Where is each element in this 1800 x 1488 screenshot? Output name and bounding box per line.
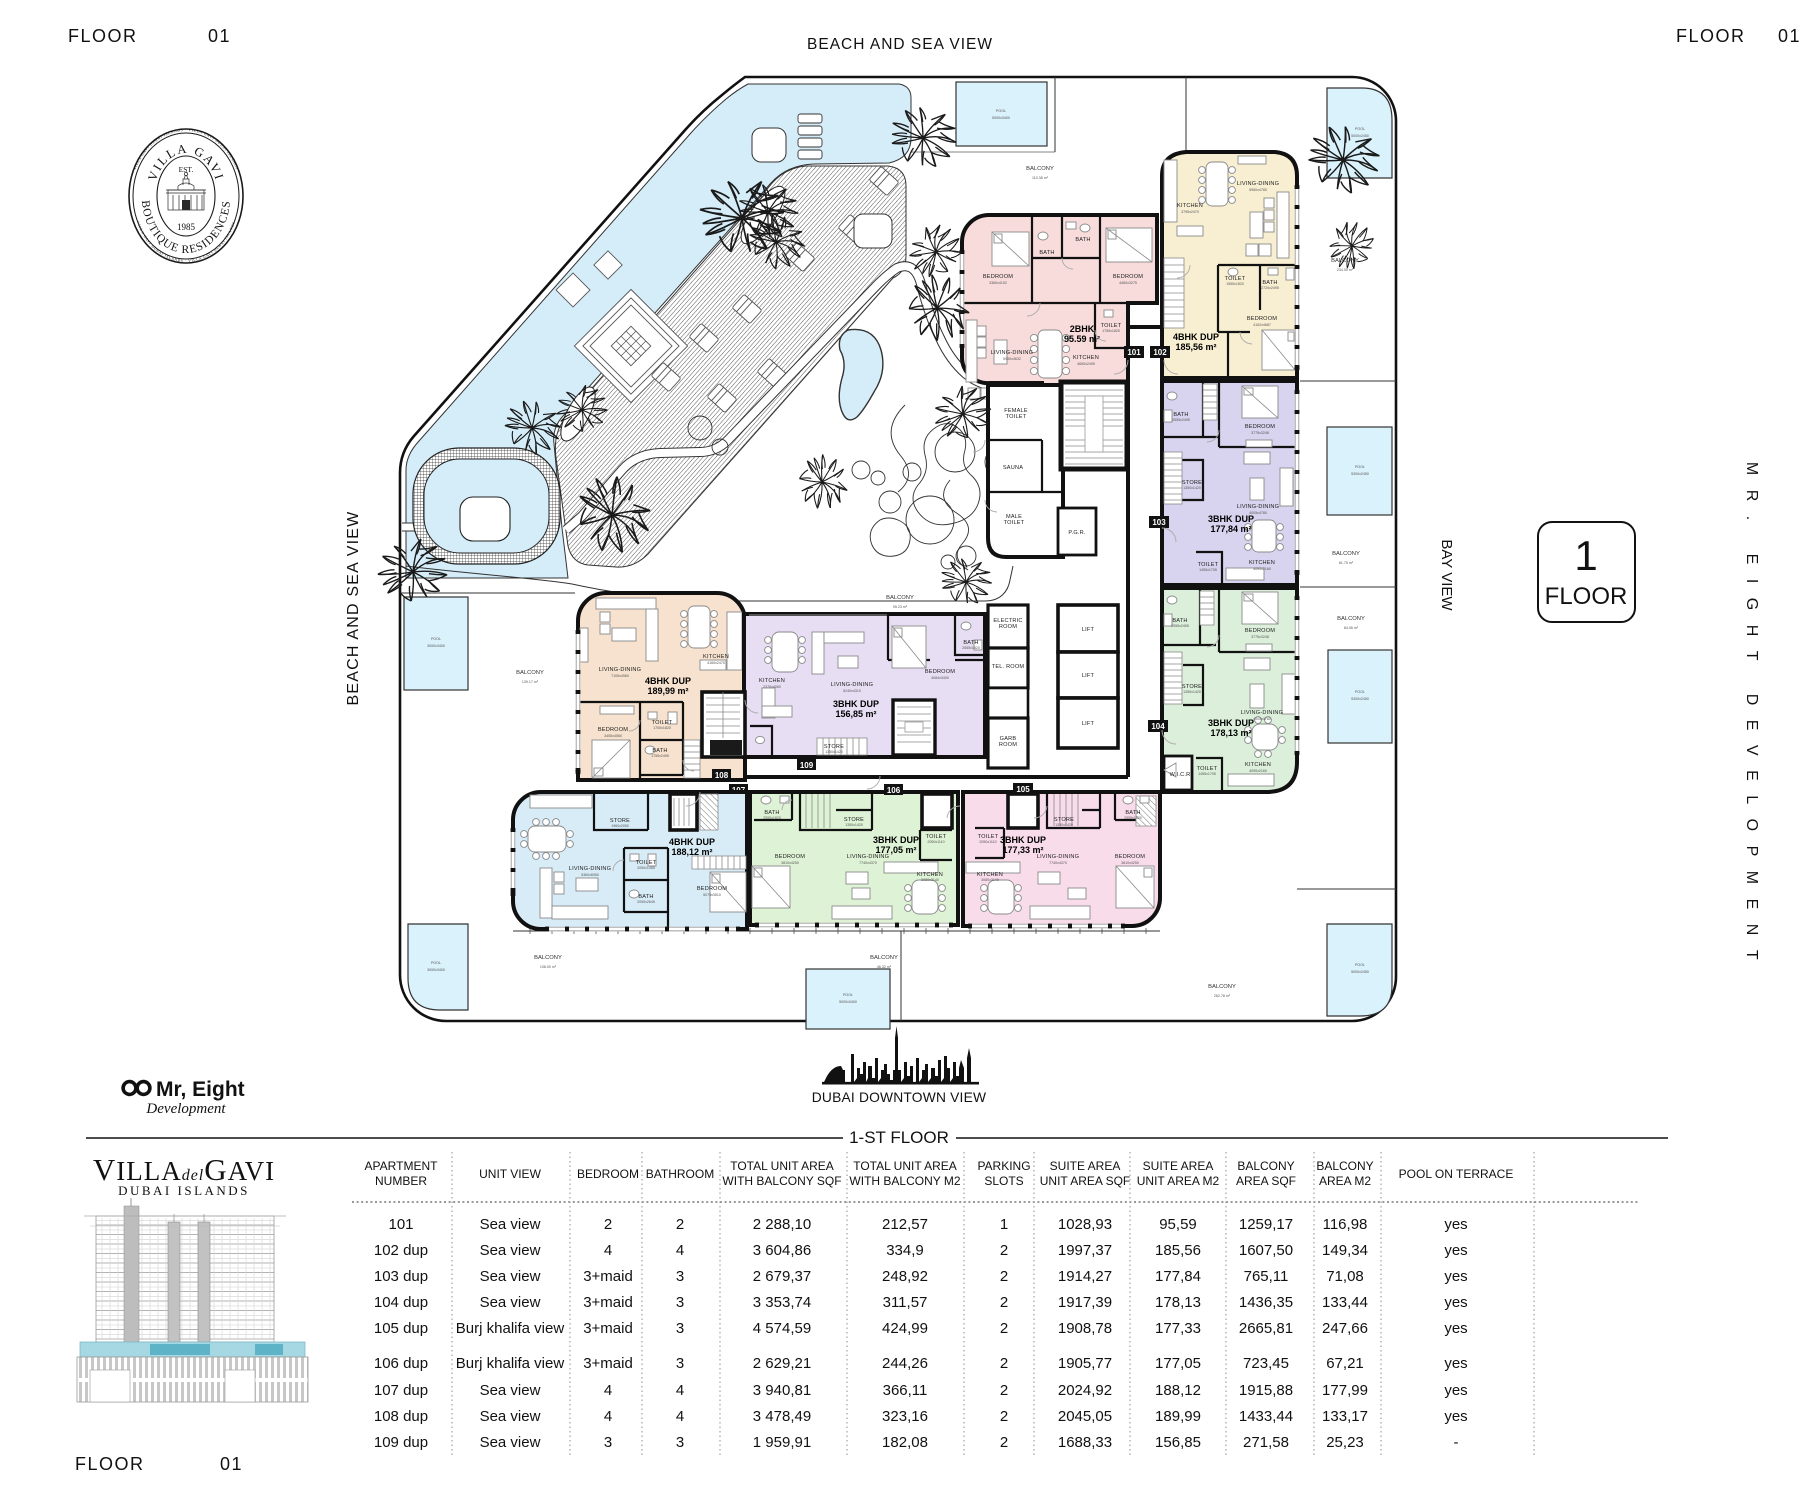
- svg-text:5000x3400: 5000x3400: [839, 1000, 857, 1004]
- svg-text:3BHK DUP: 3BHK DUP: [1208, 514, 1254, 524]
- svg-text:Sea view: Sea view: [480, 1268, 541, 1285]
- svg-text:212,57: 212,57: [882, 1216, 928, 1233]
- svg-text:234.00 m²: 234.00 m²: [1337, 268, 1354, 272]
- svg-text:244,26: 244,26: [882, 1355, 928, 1372]
- svg-text:1960x2050: 1960x2050: [611, 824, 629, 828]
- svg-text:4160x2470: 4160x2470: [707, 661, 725, 665]
- svg-text:LIVING-DINING: LIVING-DINING: [847, 854, 889, 860]
- svg-text:AREA M2: AREA M2: [1319, 1174, 1371, 1188]
- svg-text:UNIT VIEW: UNIT VIEW: [479, 1167, 541, 1181]
- svg-text:2370x4060: 2370x4060: [763, 685, 781, 689]
- svg-text:BEDROOM: BEDROOM: [775, 854, 805, 860]
- svg-text:188,12 m²: 188,12 m²: [671, 847, 712, 857]
- svg-text:Sea view: Sea view: [480, 1382, 541, 1399]
- svg-text:1607,50: 1607,50: [1239, 1242, 1293, 1259]
- svg-text:LIVING-DINING: LIVING-DINING: [599, 667, 641, 673]
- svg-text:1: 1: [1000, 1216, 1008, 1233]
- svg-text:POOL: POOL: [1355, 690, 1365, 694]
- svg-text:3 353,74: 3 353,74: [753, 1294, 811, 1311]
- svg-text:108: 108: [715, 771, 729, 780]
- svg-text:1917,39: 1917,39: [1058, 1294, 1112, 1311]
- svg-text:4BHK DUP: 4BHK DUP: [669, 837, 715, 847]
- svg-text:TOILET: TOILET: [1006, 414, 1027, 420]
- svg-text:1350x1420: 1350x1420: [1055, 823, 1073, 827]
- svg-text:BEDROOM: BEDROOM: [983, 274, 1013, 280]
- svg-text:177,84 m²: 177,84 m²: [1210, 524, 1251, 534]
- svg-text:KITCHEN: KITCHEN: [1249, 560, 1275, 566]
- svg-text:BATH: BATH: [1039, 250, 1054, 256]
- svg-text:133,17: 133,17: [1322, 1408, 1368, 1425]
- svg-text:Sea view: Sea view: [480, 1242, 541, 1259]
- svg-text:109 dup: 109 dup: [374, 1434, 428, 1451]
- svg-text:1-ST FLOOR: 1-ST FLOOR: [849, 1128, 949, 1147]
- svg-text:1985: 1985: [177, 222, 196, 232]
- svg-text:yes: yes: [1444, 1408, 1467, 1425]
- svg-text:3: 3: [604, 1434, 612, 1451]
- svg-text:3 940,81: 3 940,81: [753, 1382, 811, 1399]
- svg-text:P.G.R.: P.G.R.: [1068, 530, 1086, 536]
- svg-text:4 574,59: 4 574,59: [753, 1320, 811, 1337]
- svg-text:POOL: POOL: [1355, 465, 1365, 469]
- svg-text:334,9: 334,9: [886, 1242, 924, 1259]
- svg-text:3BHK DUP: 3BHK DUP: [833, 699, 879, 709]
- svg-text:3810x4250: 3810x4250: [781, 861, 799, 865]
- svg-text:1350x1420: 1350x1420: [845, 823, 863, 827]
- svg-text:POOL: POOL: [431, 637, 441, 641]
- svg-text:Mr, Eight: Mr, Eight: [156, 1078, 245, 1101]
- svg-text:yes: yes: [1444, 1242, 1467, 1259]
- svg-text:TOTAL UNIT AREA: TOTAL UNIT AREA: [853, 1159, 957, 1173]
- svg-text:Sea view: Sea view: [480, 1294, 541, 1311]
- svg-text:W.I.C.R: W.I.C.R: [1170, 772, 1191, 778]
- svg-text:101: 101: [1127, 348, 1141, 357]
- svg-text:Burj khalifa view: Burj khalifa view: [456, 1320, 565, 1337]
- svg-text:3360x4102: 3360x4102: [989, 281, 1007, 285]
- svg-text:3: 3: [676, 1294, 684, 1311]
- svg-text:Development: Development: [145, 1101, 226, 1117]
- svg-text:3: 3: [676, 1355, 684, 1372]
- svg-text:2050x1110: 2050x1110: [927, 840, 944, 844]
- svg-text:3 478,49: 3 478,49: [753, 1408, 811, 1425]
- svg-text:3810x4250: 3810x4250: [1121, 861, 1139, 865]
- svg-text:1350x1420: 1350x1420: [1183, 486, 1201, 490]
- svg-text:BEDROOM: BEDROOM: [1245, 628, 1275, 634]
- svg-text:yes: yes: [1444, 1320, 1467, 1337]
- svg-text:Burj khalifa view: Burj khalifa view: [456, 1355, 565, 1372]
- svg-text:5000x2450: 5000x2450: [1351, 134, 1369, 138]
- svg-text:AREA SQF: AREA SQF: [1236, 1174, 1296, 1188]
- svg-text:FLOOR: FLOOR: [1676, 26, 1746, 46]
- svg-text:188,12: 188,12: [1155, 1382, 1201, 1399]
- svg-text:4BHK DUP: 4BHK DUP: [645, 676, 691, 686]
- svg-text:UNIT AREA M2: UNIT AREA M2: [1137, 1174, 1220, 1188]
- svg-text:2045,05: 2045,05: [1058, 1408, 1112, 1425]
- svg-text:BALCONY: BALCONY: [1208, 984, 1236, 990]
- svg-text:2555x1820: 2555x1820: [962, 646, 980, 650]
- svg-text:BATHROOM: BATHROOM: [646, 1167, 714, 1181]
- svg-text:3795x2470: 3795x2470: [1181, 210, 1199, 214]
- svg-text:SAUNA: SAUNA: [1003, 465, 1023, 471]
- svg-text:3+maid: 3+maid: [583, 1355, 633, 1372]
- svg-text:BEDROOM: BEDROOM: [1247, 316, 1277, 322]
- svg-text:BEDROOM: BEDROOM: [1115, 854, 1145, 860]
- svg-text:5000x2450: 5000x2450: [1351, 970, 1369, 974]
- svg-text:3+maid: 3+maid: [583, 1294, 633, 1311]
- svg-text:1455x1705: 1455x1705: [1198, 772, 1216, 776]
- svg-text:2: 2: [1000, 1242, 1008, 1259]
- svg-text:1555x1820: 1555x1820: [1226, 282, 1244, 286]
- svg-text:2555x2495: 2555x2495: [1172, 418, 1190, 422]
- svg-text:366,11: 366,11: [883, 1382, 928, 1399]
- svg-text:1905,77: 1905,77: [1058, 1355, 1112, 1372]
- svg-text:182,08: 182,08: [882, 1434, 928, 1451]
- svg-text:1 959,91: 1 959,91: [753, 1434, 811, 1451]
- svg-text:LIVING-DINING: LIVING-DINING: [831, 682, 873, 688]
- svg-text:3775x3248: 3775x3248: [1251, 635, 1269, 639]
- svg-text:FLOOR: FLOOR: [68, 26, 138, 46]
- svg-text:71,08: 71,08: [1326, 1268, 1364, 1285]
- svg-text:LIVING-DINING: LIVING-DINING: [1237, 181, 1279, 187]
- svg-text:248,92: 248,92: [882, 1268, 928, 1285]
- svg-text:156,85: 156,85: [1155, 1434, 1201, 1451]
- svg-text:TOTAL UNIT AREA: TOTAL UNIT AREA: [730, 1159, 834, 1173]
- svg-text:178,13 m²: 178,13 m²: [1210, 728, 1251, 738]
- svg-text:3080x3140: 3080x3140: [981, 878, 999, 882]
- svg-text:271,58: 271,58: [1243, 1434, 1289, 1451]
- svg-text:2BHK: 2BHK: [1070, 324, 1095, 334]
- svg-text:262.78 m²: 262.78 m²: [1214, 994, 1231, 998]
- svg-text:116,98: 116,98: [1323, 1216, 1368, 1233]
- svg-text:2: 2: [1000, 1355, 1008, 1372]
- svg-text:BEACH AND SEA VIEW: BEACH AND SEA VIEW: [807, 36, 993, 53]
- svg-text:BEDROOM: BEDROOM: [598, 727, 628, 733]
- svg-text:3BHK DUP: 3BHK DUP: [1000, 835, 1046, 845]
- svg-text:yes: yes: [1444, 1294, 1467, 1311]
- svg-text:TEL. ROOM: TEL. ROOM: [992, 664, 1025, 670]
- svg-text:1350x1420: 1350x1420: [825, 750, 843, 754]
- svg-text:4090x2160: 4090x2160: [1249, 769, 1267, 773]
- svg-text:3+maid: 3+maid: [583, 1268, 633, 1285]
- svg-text:4: 4: [676, 1382, 684, 1399]
- svg-text:109: 109: [800, 761, 814, 770]
- svg-text:BAY VIEW: BAY VIEW: [1438, 539, 1455, 611]
- svg-text:2555x1820: 2555x1820: [763, 816, 781, 820]
- svg-text:177,84: 177,84: [1155, 1268, 1201, 1285]
- svg-text:3000x3400: 3000x3400: [427, 644, 445, 648]
- svg-text:Sea view: Sea view: [480, 1216, 541, 1233]
- svg-text:424,99: 424,99: [882, 1320, 928, 1337]
- svg-text:BEDROOM: BEDROOM: [697, 886, 727, 892]
- svg-text:MR. EIGHT DEVELOPMENT: MR. EIGHT DEVELOPMENT: [1743, 462, 1760, 974]
- svg-text:323,16: 323,16: [882, 1408, 928, 1425]
- svg-text:POOL ON TERRACE: POOL ON TERRACE: [1399, 1167, 1514, 1181]
- svg-text:4: 4: [604, 1382, 612, 1399]
- svg-text:SUITE AREA: SUITE AREA: [1050, 1159, 1121, 1173]
- svg-text:1755x2495: 1755x2495: [651, 754, 669, 758]
- svg-text:2: 2: [1000, 1408, 1008, 1425]
- svg-text:3080x3140: 3080x3140: [921, 878, 939, 882]
- svg-text:BALCONY: BALCONY: [870, 955, 898, 961]
- svg-text:1997,37: 1997,37: [1058, 1242, 1112, 1259]
- svg-text:95.23 m²: 95.23 m²: [893, 605, 908, 609]
- svg-text:SLOTS: SLOTS: [984, 1174, 1023, 1188]
- svg-text:KITCHEN: KITCHEN: [703, 654, 729, 660]
- svg-text:01: 01: [1778, 26, 1800, 46]
- svg-text:2050x1110: 2050x1110: [979, 840, 996, 844]
- svg-text:3: 3: [676, 1434, 684, 1451]
- svg-text:2 288,10: 2 288,10: [753, 1216, 811, 1233]
- svg-text:765,11: 765,11: [1244, 1268, 1289, 1285]
- svg-text:DUBAI DOWNTOWN VIEW: DUBAI DOWNTOWN VIEW: [812, 1090, 986, 1105]
- svg-text:01: 01: [220, 1454, 243, 1474]
- svg-text:KITCHEN: KITCHEN: [1177, 203, 1203, 209]
- svg-text:110.38 m²: 110.38 m²: [1032, 176, 1049, 180]
- svg-text:WITH BALCONY M2: WITH BALCONY M2: [849, 1174, 960, 1188]
- svg-text:BEDROOM: BEDROOM: [1113, 274, 1143, 280]
- svg-text:102: 102: [1153, 348, 1167, 357]
- svg-text:BALCONY: BALCONY: [1026, 166, 1054, 172]
- svg-text:185,56 m²: 185,56 m²: [1175, 342, 1216, 352]
- svg-text:2: 2: [1000, 1434, 1008, 1451]
- svg-text:67,21: 67,21: [1326, 1355, 1364, 1372]
- svg-text:156,85 m²: 156,85 m²: [835, 709, 876, 719]
- svg-text:-: -: [1454, 1434, 1459, 1451]
- svg-text:7740x4370: 7740x4370: [859, 861, 877, 865]
- svg-text:7105x4960: 7105x4960: [611, 674, 629, 678]
- svg-text:3: 3: [676, 1268, 684, 1285]
- svg-text:104: 104: [1151, 722, 1165, 731]
- svg-text:4005x4780: 4005x4780: [1253, 717, 1271, 721]
- svg-text:177,99: 177,99: [1322, 1382, 1368, 1399]
- svg-text:178,13: 178,13: [1155, 1294, 1201, 1311]
- svg-text:Sea view: Sea view: [480, 1408, 541, 1425]
- svg-text:46.32 m²: 46.32 m²: [877, 965, 892, 969]
- svg-text:5240x4310: 5240x4310: [843, 689, 861, 693]
- svg-text:DUBAI ISLANDS: DUBAI ISLANDS: [118, 1183, 250, 1198]
- svg-text:WITH BALCONY SQF: WITH BALCONY SQF: [722, 1174, 841, 1188]
- svg-text:1028,93: 1028,93: [1058, 1216, 1112, 1233]
- svg-text:5950x4780: 5950x4780: [1249, 188, 1267, 192]
- svg-text:1259,17: 1259,17: [1239, 1216, 1293, 1233]
- svg-text:101: 101: [388, 1216, 413, 1233]
- svg-text:LIVING-DINING: LIVING-DINING: [1037, 854, 1079, 860]
- svg-text:LIVING-DINING: LIVING-DINING: [991, 350, 1033, 356]
- svg-text:KITCHEN: KITCHEN: [1073, 355, 1099, 361]
- svg-text:BEACH AND SEA VIEW: BEACH AND SEA VIEW: [345, 511, 362, 706]
- svg-text:BALCONY: BALCONY: [516, 670, 544, 676]
- svg-text:25,23: 25,23: [1326, 1434, 1364, 1451]
- svg-text:4005x4780: 4005x4780: [1249, 511, 1267, 515]
- svg-text:108 dup: 108 dup: [374, 1408, 428, 1425]
- svg-text:4BHK DUP: 4BHK DUP: [1173, 332, 1219, 342]
- svg-text:5360x6950: 5360x6950: [581, 873, 599, 877]
- svg-text:BALCONY: BALCONY: [1316, 1159, 1373, 1173]
- svg-text:4: 4: [604, 1408, 612, 1425]
- svg-text:2 629,21: 2 629,21: [753, 1355, 811, 1372]
- svg-text:LIVING-DINING: LIVING-DINING: [1241, 710, 1283, 716]
- svg-text:723,45: 723,45: [1243, 1355, 1289, 1372]
- svg-text:Sea view: Sea view: [480, 1434, 541, 1451]
- svg-text:1915,88: 1915,88: [1239, 1382, 1293, 1399]
- svg-text:108.00 m²: 108.00 m²: [540, 965, 557, 969]
- svg-text:3+maid: 3+maid: [583, 1320, 633, 1337]
- svg-text:104 dup: 104 dup: [374, 1294, 428, 1311]
- svg-text:APARTMENT: APARTMENT: [365, 1159, 439, 1173]
- svg-text:189,99: 189,99: [1155, 1408, 1201, 1425]
- svg-text:BALCONY: BALCONY: [534, 955, 562, 961]
- svg-text:4090x2160: 4090x2160: [1253, 567, 1271, 571]
- svg-text:01: 01: [208, 26, 231, 46]
- svg-text:177,05: 177,05: [1155, 1355, 1201, 1372]
- svg-text:107 dup: 107 dup: [374, 1382, 428, 1399]
- svg-text:SUITE AREA: SUITE AREA: [1143, 1159, 1214, 1173]
- svg-text:5000x3400: 5000x3400: [992, 116, 1010, 120]
- svg-text:BEDROOM: BEDROOM: [577, 1167, 639, 1181]
- svg-text:POOL: POOL: [996, 109, 1006, 113]
- svg-text:2: 2: [604, 1216, 612, 1233]
- svg-text:4: 4: [676, 1408, 684, 1425]
- svg-text:5300x2450: 5300x2450: [1351, 697, 1369, 701]
- svg-text:2555x2495: 2555x2495: [1171, 624, 1189, 628]
- svg-text:149,34: 149,34: [1322, 1242, 1368, 1259]
- svg-text:2: 2: [1000, 1320, 1008, 1337]
- svg-text:311,57: 311,57: [883, 1294, 928, 1311]
- svg-text:1908,78: 1908,78: [1058, 1320, 1112, 1337]
- svg-text:BALCONY: BALCONY: [1337, 616, 1365, 622]
- svg-text:BALCONY: BALCONY: [886, 595, 914, 601]
- svg-text:3: 3: [676, 1320, 684, 1337]
- svg-text:185,56: 185,56: [1155, 1242, 1201, 1259]
- svg-text:LIFT: LIFT: [1082, 627, 1095, 633]
- svg-text:177,33: 177,33: [1155, 1320, 1201, 1337]
- svg-text:4: 4: [676, 1242, 684, 1259]
- svg-text:2050x2645: 2050x2645: [637, 900, 655, 904]
- svg-text:3BHK DUP: 3BHK DUP: [1208, 718, 1254, 728]
- svg-text:1688,33: 1688,33: [1058, 1434, 1112, 1451]
- svg-text:KITCHEN: KITCHEN: [759, 678, 785, 684]
- svg-text:4650x2495: 4650x2495: [1077, 362, 1095, 366]
- svg-text:KITCHEN: KITCHEN: [1245, 762, 1271, 768]
- svg-text:2: 2: [1000, 1294, 1008, 1311]
- svg-text:106 dup: 106 dup: [374, 1355, 428, 1372]
- svg-text:102 dup: 102 dup: [374, 1242, 428, 1259]
- svg-text:2: 2: [1000, 1382, 1008, 1399]
- svg-text:3455x4060: 3455x4060: [604, 734, 622, 738]
- svg-text:106: 106: [887, 786, 901, 795]
- svg-text:yes: yes: [1444, 1216, 1467, 1233]
- svg-text:POOL: POOL: [843, 993, 853, 997]
- svg-text:5950x4632: 5950x4632: [1003, 357, 1021, 361]
- svg-text:2024,92: 2024,92: [1058, 1382, 1112, 1399]
- svg-text:3000x3400: 3000x3400: [427, 968, 445, 972]
- svg-text:UNIT AREA SQF: UNIT AREA SQF: [1040, 1174, 1130, 1188]
- svg-text:POOL: POOL: [1355, 127, 1365, 131]
- svg-text:FLOOR: FLOOR: [75, 1454, 145, 1474]
- svg-text:BALCONY: BALCONY: [1332, 551, 1360, 557]
- svg-text:1705x1820: 1705x1820: [653, 726, 671, 730]
- svg-text:ROOM: ROOM: [999, 624, 1017, 630]
- svg-text:3 604,86: 3 604,86: [753, 1242, 811, 1259]
- svg-text:7740x4370: 7740x4370: [1049, 861, 1067, 865]
- svg-text:81.75 m²: 81.75 m²: [1339, 561, 1354, 565]
- svg-text:2: 2: [676, 1216, 684, 1233]
- svg-text:yes: yes: [1444, 1382, 1467, 1399]
- svg-text:3775x3248: 3775x3248: [1251, 431, 1269, 435]
- svg-text:LIFT: LIFT: [1082, 673, 1095, 679]
- svg-text:BALCONY: BALCONY: [1237, 1159, 1294, 1173]
- svg-text:2: 2: [1000, 1268, 1008, 1285]
- svg-text:105: 105: [1016, 785, 1030, 794]
- svg-text:4084x3400: 4084x3400: [931, 676, 949, 680]
- svg-text:2 679,37: 2 679,37: [753, 1268, 811, 1285]
- svg-text:yes: yes: [1444, 1355, 1467, 1372]
- svg-text:133,44: 133,44: [1322, 1294, 1368, 1311]
- svg-text:4: 4: [604, 1242, 612, 1259]
- svg-text:BATH: BATH: [1075, 237, 1090, 243]
- svg-text:LIVING-DINING: LIVING-DINING: [569, 866, 611, 872]
- svg-text:5300x2450: 5300x2450: [1351, 472, 1369, 476]
- svg-text:189,99 m²: 189,99 m²: [647, 686, 688, 696]
- svg-text:2720x2495: 2720x2495: [1261, 286, 1279, 290]
- svg-text:95,59: 95,59: [1159, 1216, 1197, 1233]
- svg-text:1914,27: 1914,27: [1058, 1268, 1112, 1285]
- svg-text:4152x4687: 4152x4687: [1253, 323, 1271, 327]
- svg-text:1436,35: 1436,35: [1239, 1294, 1293, 1311]
- svg-text:1: 1: [1574, 532, 1597, 579]
- svg-text:84.06 m²: 84.06 m²: [1344, 626, 1359, 630]
- svg-text:BEDROOM: BEDROOM: [925, 669, 955, 675]
- svg-text:1433,44: 1433,44: [1239, 1408, 1293, 1425]
- svg-text:103: 103: [1152, 518, 1166, 527]
- svg-text:TOILET: TOILET: [1004, 520, 1025, 526]
- svg-text:1350x1420: 1350x1420: [1183, 690, 1201, 694]
- svg-text:247,66: 247,66: [1322, 1320, 1368, 1337]
- svg-text:3BHK DUP: 3BHK DUP: [873, 835, 919, 845]
- svg-text:4460x3275: 4460x3275: [1119, 281, 1137, 285]
- svg-text:POOL: POOL: [431, 961, 441, 965]
- svg-text:2555x1820: 2555x1820: [1124, 816, 1142, 820]
- svg-text:5075x3510: 5075x3510: [703, 893, 721, 897]
- svg-text:95.59 m²: 95.59 m²: [1064, 334, 1100, 344]
- svg-text:1455x1705: 1455x1705: [1199, 568, 1217, 572]
- svg-text:1755x1820: 1755x1820: [1102, 329, 1120, 333]
- svg-text:yes: yes: [1444, 1268, 1467, 1285]
- svg-text:ROOM: ROOM: [999, 742, 1017, 748]
- svg-text:BEDROOM: BEDROOM: [1245, 424, 1275, 430]
- svg-text:LIFT: LIFT: [1082, 721, 1095, 727]
- svg-text:2050x1455: 2050x1455: [637, 866, 655, 870]
- svg-text:POOL: POOL: [1355, 963, 1365, 967]
- svg-text:103 dup: 103 dup: [374, 1268, 428, 1285]
- svg-text:LIVING-DINING: LIVING-DINING: [1237, 504, 1279, 510]
- svg-text:105 dup: 105 dup: [374, 1320, 428, 1337]
- svg-text:NUMBER: NUMBER: [375, 1174, 427, 1188]
- svg-text:PARKING: PARKING: [977, 1159, 1030, 1173]
- svg-text:FLOOR: FLOOR: [1545, 583, 1628, 610]
- svg-text:139.17 m²: 139.17 m²: [522, 680, 539, 684]
- svg-text:2665,81: 2665,81: [1239, 1320, 1293, 1337]
